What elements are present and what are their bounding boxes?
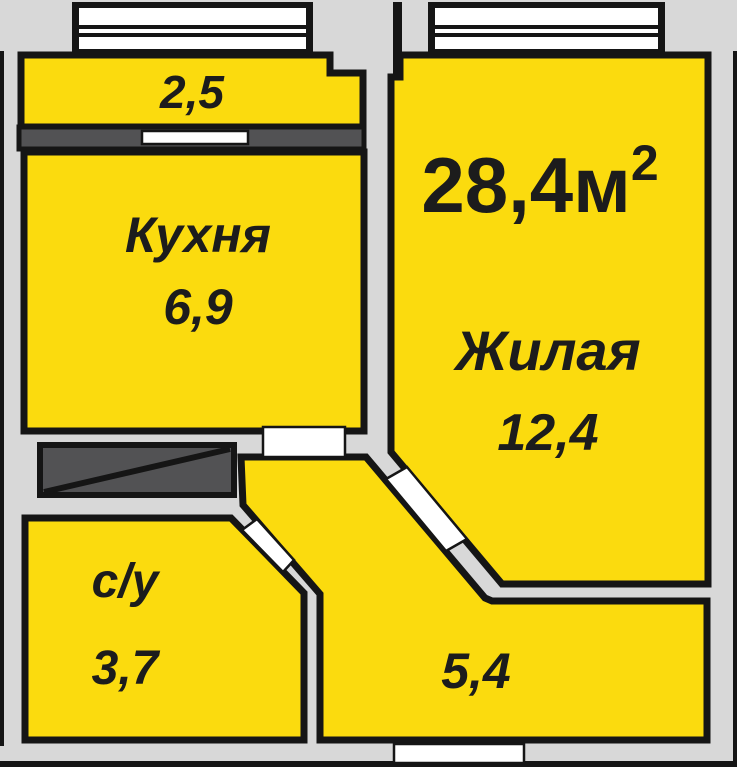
window-right-mullion-gap xyxy=(435,29,658,33)
bathroom-name-label: с/у xyxy=(92,555,161,608)
window-left xyxy=(72,2,313,55)
floor-plan: 2,5 Кухня 6,9 28,4м2 Жилая 12,4 с/у 3,7 … xyxy=(0,0,737,767)
total-area-value: 28,4м xyxy=(421,141,631,229)
floor-plan-canvas: 2,5 Кухня 6,9 28,4м2 Жилая 12,4 с/у 3,7 … xyxy=(0,0,737,767)
bathroom-area-label: 3,7 xyxy=(92,642,161,695)
outer-wall-bottom xyxy=(0,761,737,767)
living-area-label: 12,4 xyxy=(497,404,598,462)
hallway-area-label: 5,4 xyxy=(441,643,511,699)
kitchen-door-opening xyxy=(263,427,345,457)
outer-wall-left xyxy=(0,51,4,746)
balcony-window-sill xyxy=(142,131,248,144)
total-area-label: 28,4м2 xyxy=(421,135,658,229)
total-area-superscript: 2 xyxy=(631,135,659,191)
kitchen-area-label: 6,9 xyxy=(163,279,233,335)
outer-wall-right xyxy=(733,51,737,767)
balcony-area-label: 2,5 xyxy=(159,66,225,118)
kitchen-name-label: Кухня xyxy=(125,207,271,263)
window-left-mullion-gap xyxy=(79,29,306,33)
window-right xyxy=(428,2,665,55)
living-name-label: Жилая xyxy=(452,319,640,382)
entrance-door-opening xyxy=(394,744,524,763)
